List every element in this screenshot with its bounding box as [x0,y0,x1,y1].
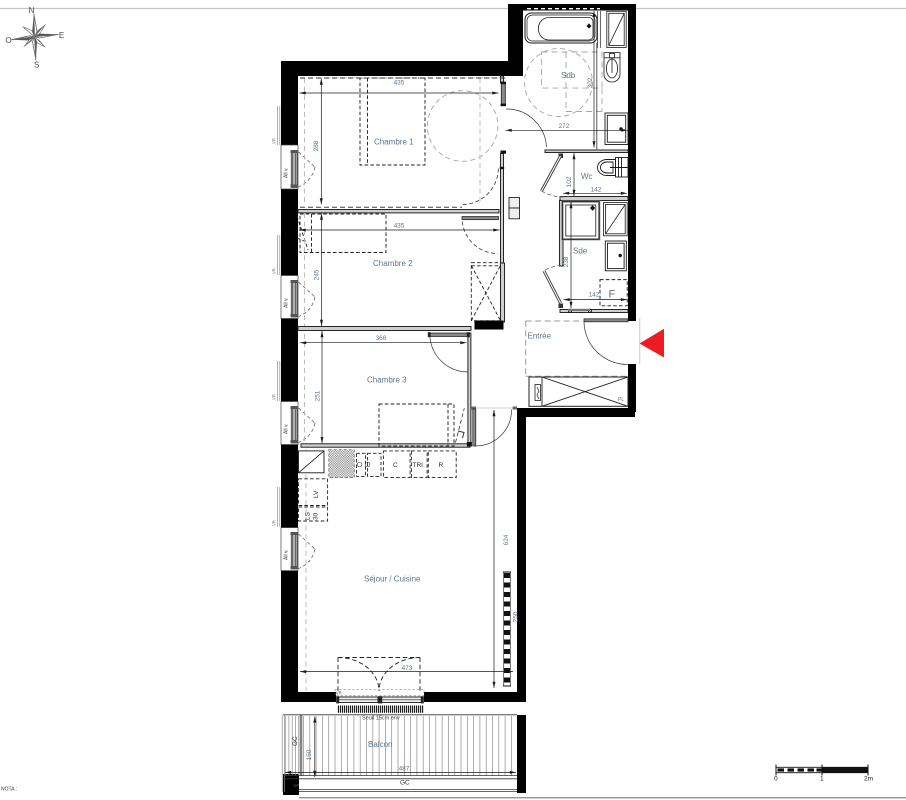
svg-text:250: 250 [513,611,520,622]
svg-text:All v.: All v. [284,424,290,434]
svg-text:102: 102 [566,176,573,187]
svg-text:All v.: All v. [284,298,290,308]
svg-text:Chambre 2: Chambre 2 [373,259,413,268]
svg-text:288: 288 [313,140,320,151]
svg-text:R: R [439,462,444,469]
svg-text:PL: PL [618,397,624,403]
svg-text:435: 435 [394,80,405,87]
svg-text:142: 142 [589,292,600,299]
svg-text:142: 142 [591,187,602,194]
svg-text:All v.: All v. [284,550,290,560]
svg-text:487: 487 [399,766,410,773]
svg-text:2m: 2m [864,776,873,783]
svg-text:VR: VR [272,394,277,400]
svg-text:Sdb: Sdb [561,71,576,80]
svg-text:VR: VR [272,138,277,144]
svg-text:435: 435 [394,223,405,230]
svg-text:366: 366 [376,335,387,342]
svg-text:NP: NP [294,783,300,788]
svg-text:VR: VR [272,520,277,526]
svg-text:LS: LS [305,511,312,520]
svg-text:VR: VR [336,691,342,696]
svg-text:N: N [29,6,35,15]
svg-text:Entrée: Entrée [528,332,552,341]
svg-text:238: 238 [563,256,570,267]
svg-text:Séjour / Cuisine: Séjour / Cuisine [364,575,421,584]
svg-text:TRI: TRI [413,462,424,469]
svg-text:O: O [5,36,11,45]
svg-text:LV: LV [313,490,320,498]
svg-text:Seuil 15cm env: Seuil 15cm env [362,716,400,722]
svg-text:All v.: All v. [284,168,290,178]
svg-text:245: 245 [314,269,321,280]
svg-text:S: S [34,61,39,70]
svg-text:30: 30 [313,512,320,520]
svg-text:Sde: Sde [573,247,588,256]
svg-text:GC: GC [292,736,299,746]
svg-text:E: E [59,31,64,40]
svg-text:C: C [393,462,398,469]
svg-text:150: 150 [306,749,313,760]
svg-text:0: 0 [774,776,778,783]
svg-text:F: F [609,289,616,301]
svg-text:NOTA :: NOTA : [1,787,17,793]
svg-text:Wc: Wc [581,172,593,181]
svg-text:GC: GC [400,780,410,787]
svg-text:624: 624 [503,534,510,545]
svg-text:251: 251 [315,390,322,401]
svg-text:VR: VR [272,268,277,274]
svg-text:473: 473 [402,665,413,672]
svg-text:Chambre 1: Chambre 1 [374,138,414,147]
svg-text:Balcon: Balcon [368,740,392,749]
svg-text:302: 302 [587,77,594,88]
svg-text:272: 272 [559,123,570,130]
svg-text:1: 1 [820,776,824,783]
svg-text:Chambre 3: Chambre 3 [367,376,407,385]
